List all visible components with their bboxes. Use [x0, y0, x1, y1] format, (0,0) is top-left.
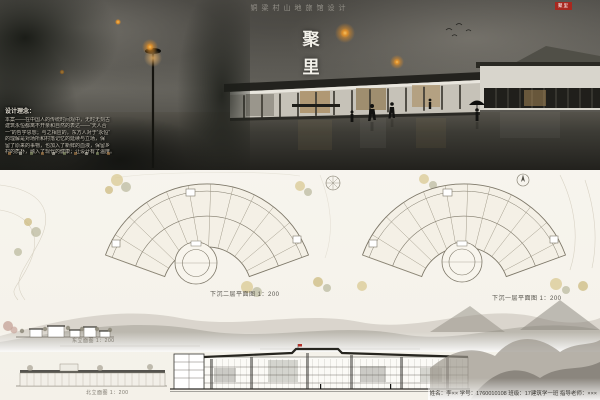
roof-flag — [298, 344, 302, 347]
credits-line: 姓名：李×× 学号：1760010108 班级：17建筑学一班 指导老师：××× — [407, 389, 597, 397]
north-elevation-drawing — [16, 364, 167, 386]
left-floor-plan — [106, 184, 309, 284]
north-elevation-caption: 北立面图 1：200 — [86, 389, 129, 396]
presentation-board: 铜梁村山地旅馆设计 聚里 聚 里 设计理念： 本案——在中国人的传统时间观中，无… — [0, 0, 600, 400]
east-elevation-caption: 东立面图 1：200 — [72, 337, 115, 344]
right-floor-plan — [363, 184, 566, 282]
plan-caption-right: 下沉一层平面图 1：200 — [492, 293, 562, 302]
plan-caption-left: 下沉二层平面图 1：200 — [210, 289, 280, 298]
